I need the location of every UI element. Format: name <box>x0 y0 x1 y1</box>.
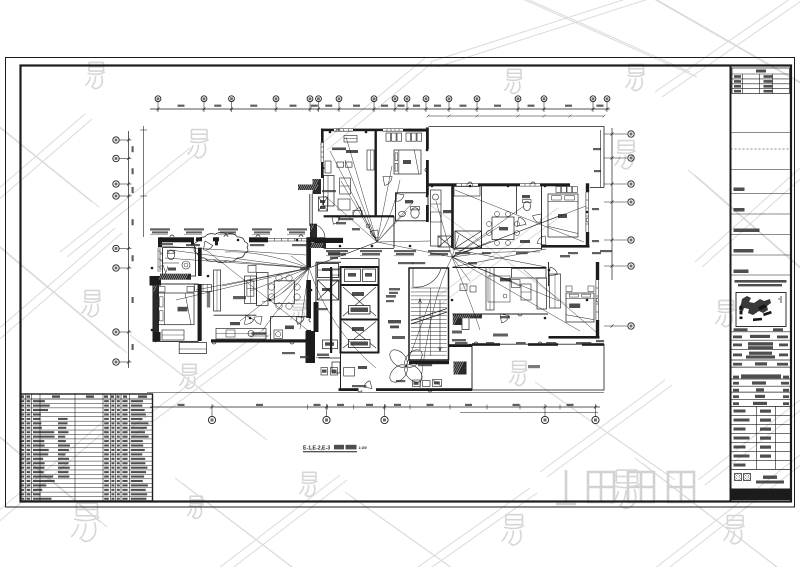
svg-text:N: N <box>778 297 780 301</box>
svg-text:1:100: 1:100 <box>359 446 367 450</box>
svg-text:E-1,E-2,E-3: E-1,E-2,E-3 <box>303 446 330 452</box>
